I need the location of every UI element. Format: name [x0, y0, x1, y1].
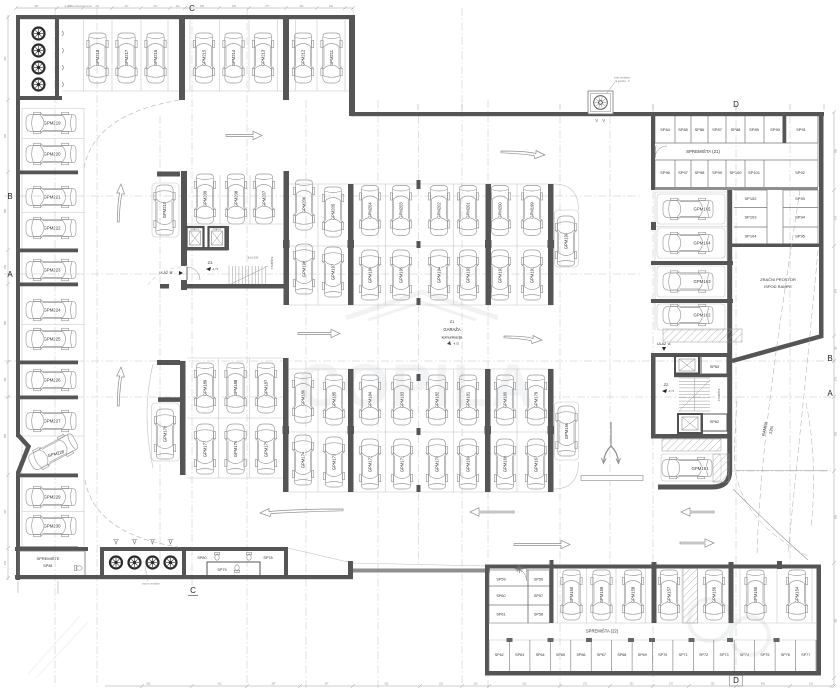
svg-text:GPM183: GPM183 [399, 391, 404, 408]
svg-text:SP71: SP71 [679, 653, 688, 657]
svg-text:GPM169: GPM169 [465, 455, 470, 472]
svg-text:B: B [7, 192, 12, 201]
svg-text:277: 277 [266, 5, 271, 8]
svg-text:GPM207: GPM207 [261, 190, 266, 207]
svg-text:GPM199: GPM199 [529, 202, 534, 219]
svg-text:217: 217 [125, 5, 130, 8]
svg-text:GPM214: GPM214 [231, 49, 236, 66]
svg-text:SP77: SP77 [801, 653, 810, 657]
svg-text:spojni ventilacijski kanal: spojni ventilacijski kanal [64, 4, 92, 8]
svg-text:SP95: SP95 [795, 234, 806, 239]
svg-text:GPM212: GPM212 [300, 49, 305, 66]
svg-text:GPM184: GPM184 [367, 391, 372, 408]
svg-text:SP75: SP75 [760, 653, 769, 657]
svg-text:352: 352 [711, 683, 716, 686]
svg-text:225: 225 [232, 5, 237, 8]
svg-text:SP93: SP93 [795, 196, 806, 201]
svg-text:112: 112 [176, 5, 180, 8]
svg-text:270: 270 [669, 683, 674, 686]
svg-text:GPM216: GPM216 [153, 49, 158, 66]
svg-text:SP70: SP70 [658, 653, 667, 657]
svg-text:GPM218: GPM218 [95, 49, 100, 66]
svg-text:262: 262 [4, 377, 7, 382]
svg-text:GPM180: GPM180 [502, 391, 507, 408]
svg-text:SP63: SP63 [515, 653, 524, 657]
svg-text:GPM224: GPM224 [44, 308, 62, 313]
svg-text:GPM189: GPM189 [202, 379, 207, 396]
svg-text:652: 652 [147, 683, 152, 686]
svg-text:D: D [733, 100, 739, 109]
svg-text:GPM158: GPM158 [630, 586, 635, 603]
svg-text:255: 255 [200, 5, 205, 8]
svg-text:zračni ventilator: zračni ventilator [142, 582, 160, 586]
svg-text:GPM197: GPM197 [330, 263, 335, 280]
svg-text:ISPOD RAMPE: ISPOD RAMPE [764, 284, 792, 289]
svg-text:A: A [7, 270, 13, 279]
svg-text:GPM177: GPM177 [202, 440, 207, 457]
svg-text:SP100: SP100 [729, 170, 742, 175]
svg-text:GPM167: GPM167 [533, 455, 538, 472]
svg-text:C: C [189, 4, 195, 13]
svg-text:862: 862 [835, 618, 838, 623]
svg-text:GPM191: GPM191 [529, 266, 534, 283]
svg-text:GPM159: GPM159 [599, 586, 604, 603]
svg-text:GPM201: GPM201 [465, 202, 470, 219]
svg-text:GPM194: GPM194 [436, 266, 441, 283]
svg-text:-4,51: -4,51 [453, 342, 460, 346]
svg-text:217: 217 [154, 5, 159, 8]
svg-text:SP78: SP78 [263, 556, 272, 560]
svg-text:GPM175: GPM175 [263, 440, 268, 457]
svg-text:585: 585 [4, 208, 7, 213]
svg-text:ULAZ ‘A’: ULAZ ‘A’ [657, 342, 671, 346]
svg-text:SP103: SP103 [744, 215, 757, 220]
svg-text:GPM205: GPM205 [330, 203, 335, 220]
svg-text:GPM229: GPM229 [44, 495, 62, 500]
svg-text:DIZALO 4: DIZALO 4 [191, 228, 199, 231]
svg-text:315: 315 [809, 683, 814, 686]
svg-text:SP92: SP92 [795, 170, 806, 175]
svg-text:217: 217 [96, 5, 101, 8]
svg-text:GPM174: GPM174 [300, 451, 305, 468]
svg-text:SP68: SP68 [617, 653, 626, 657]
svg-text:GPM166: GPM166 [564, 422, 569, 439]
svg-text:SP69: SP69 [638, 653, 647, 657]
svg-text:232: 232 [300, 5, 305, 8]
svg-text:322: 322 [630, 683, 635, 686]
svg-text:555: 555 [835, 431, 838, 436]
svg-text:GPM163: GPM163 [694, 279, 712, 284]
svg-text:-4,71: -4,71 [212, 267, 219, 271]
svg-text:GPM156: GPM156 [711, 586, 716, 603]
svg-text:SP81: SP81 [43, 563, 54, 568]
svg-text:GPM222: GPM222 [44, 226, 62, 231]
svg-text:Z2: Z2 [664, 382, 669, 387]
svg-text:SP64: SP64 [536, 653, 545, 657]
svg-text:GARAŽA: GARAŽA [443, 327, 460, 332]
svg-text:GPM176: GPM176 [233, 440, 238, 457]
svg-text:375: 375 [583, 683, 588, 686]
svg-text:zrak ventilator: zrak ventilator [614, 76, 630, 80]
svg-text:540: 540 [4, 133, 7, 138]
svg-text:GPM193: GPM193 [465, 266, 470, 283]
svg-text:SP56: SP56 [534, 578, 543, 582]
svg-text:SP67: SP67 [597, 653, 606, 657]
svg-text:D: D [733, 676, 739, 685]
svg-text:GPM182: GPM182 [434, 391, 439, 408]
svg-text:SP80: SP80 [197, 556, 206, 560]
svg-text:SP76: SP76 [781, 653, 790, 657]
svg-text:SP96: SP96 [660, 170, 671, 175]
svg-text:SPREMIŠTE: SPREMIŠTE [36, 556, 59, 561]
svg-text:GPM173: GPM173 [331, 453, 336, 470]
svg-text:GPM168: GPM168 [502, 455, 507, 472]
svg-text:Z3: Z3 [208, 260, 213, 265]
svg-text:GPM208: GPM208 [233, 190, 238, 207]
svg-text:GPM202: GPM202 [436, 202, 441, 219]
svg-text:SP72: SP72 [699, 653, 708, 657]
svg-text:307: 307 [35, 5, 40, 8]
svg-text:GPM200: GPM200 [497, 202, 502, 219]
svg-text:GPM154: GPM154 [794, 586, 799, 603]
svg-text:SP101: SP101 [748, 170, 761, 175]
svg-text:SP102: SP102 [744, 196, 757, 201]
svg-text:GPM225: GPM225 [44, 337, 62, 342]
svg-text:SP98: SP98 [695, 170, 706, 175]
svg-text:GPM165: GPM165 [694, 207, 712, 212]
svg-text:B: B [827, 354, 832, 363]
svg-text:komunikacija: komunikacija [442, 335, 463, 339]
svg-text:SPREMIŠTA (21): SPREMIŠTA (21) [686, 149, 720, 154]
svg-text:GPM209: GPM209 [202, 190, 207, 207]
svg-text:397: 397 [272, 683, 277, 686]
svg-text:SP104: SP104 [744, 234, 757, 239]
svg-text:GPM217: GPM217 [124, 49, 129, 66]
svg-text:GPM188: GPM188 [233, 379, 238, 396]
svg-text:SP60: SP60 [496, 594, 505, 598]
svg-text:SP73: SP73 [720, 653, 729, 657]
svg-text:585: 585 [835, 148, 838, 153]
svg-text:SP97: SP97 [678, 170, 689, 175]
svg-text:585: 585 [4, 320, 7, 325]
svg-text:8x16,9/30: 8x16,9/30 [248, 257, 259, 260]
svg-text:SP84: SP84 [660, 127, 671, 132]
svg-text:SP58: SP58 [534, 613, 543, 617]
svg-text:SP65: SP65 [556, 653, 565, 657]
svg-text:SP89: SP89 [749, 127, 760, 132]
svg-text:SP87: SP87 [712, 127, 723, 132]
svg-text:GPM219: GPM219 [44, 121, 62, 126]
svg-text:SPREMIŠTA (22): SPREMIŠTA (22) [586, 629, 619, 634]
svg-text:255: 255 [4, 264, 7, 269]
svg-text:547: 547 [4, 509, 7, 514]
svg-text:405: 405 [761, 683, 766, 686]
svg-text:za garažu - 5: za garažu - 5 [614, 79, 630, 83]
svg-text:GPM157: GPM157 [666, 586, 671, 603]
svg-text:GPM220: GPM220 [44, 152, 62, 157]
svg-text:GPM227: GPM227 [44, 419, 62, 424]
svg-text:SP66: SP66 [576, 653, 585, 657]
svg-text:270: 270 [835, 376, 838, 381]
svg-text:GPM185: GPM185 [331, 391, 336, 408]
svg-text:GPM172: GPM172 [367, 455, 372, 472]
svg-text:GPM195: GPM195 [398, 266, 403, 283]
svg-text:532: 532 [523, 683, 528, 686]
svg-text:SP74: SP74 [740, 653, 749, 657]
svg-text:SP82: SP82 [710, 420, 719, 424]
svg-text:GPM187: GPM187 [263, 379, 268, 396]
svg-text:DIZALO 3: DIZALO 3 [213, 228, 221, 231]
svg-text:C: C [190, 586, 196, 595]
svg-text:GPM226: GPM226 [44, 378, 62, 383]
svg-text:GPM213: GPM213 [260, 49, 265, 66]
svg-text:SP99: SP99 [712, 170, 723, 175]
svg-text:SP57: SP57 [534, 594, 543, 598]
svg-text:GPM211: GPM211 [329, 49, 334, 66]
svg-text:SP83: SP83 [710, 365, 719, 369]
svg-text:SP61: SP61 [496, 613, 505, 617]
svg-text:SP88: SP88 [731, 127, 742, 132]
svg-text:202: 202 [474, 683, 479, 686]
svg-text:GPM210: GPM210 [162, 201, 167, 218]
svg-text:-4,71: -4,71 [668, 389, 675, 393]
svg-text:GPM223: GPM223 [44, 268, 62, 273]
svg-text:690: 690 [835, 514, 838, 519]
svg-text:315: 315 [439, 683, 444, 686]
svg-text:SP90: SP90 [770, 127, 781, 132]
svg-text:210: 210 [329, 5, 334, 8]
svg-text:SP79: SP79 [217, 568, 226, 572]
svg-text:A: A [827, 389, 833, 398]
svg-text:622: 622 [4, 56, 7, 61]
svg-text:GPM190: GPM190 [563, 232, 568, 249]
svg-text:GPM198: GPM198 [301, 260, 306, 277]
svg-text:GPM178: GPM178 [162, 425, 167, 442]
svg-text:SP91: SP91 [796, 127, 807, 132]
svg-text:397: 397 [325, 683, 330, 686]
svg-text:GPM179: GPM179 [533, 391, 538, 408]
svg-text:GPM155: GPM155 [753, 586, 758, 603]
svg-text:SP62: SP62 [495, 653, 504, 657]
svg-text:GPM160: GPM160 [569, 586, 574, 603]
svg-text:585: 585 [4, 433, 7, 438]
svg-text:GPM161: GPM161 [692, 466, 710, 471]
svg-text:412: 412 [218, 683, 223, 686]
svg-text:SP94: SP94 [795, 215, 806, 220]
svg-text:GPM196: GPM196 [367, 266, 372, 283]
svg-text:GPM203: GPM203 [398, 202, 403, 219]
svg-text:GPM230: GPM230 [44, 524, 62, 529]
svg-text:225: 225 [4, 560, 7, 565]
svg-text:GPM164: GPM164 [694, 241, 712, 246]
svg-text:GPM162: GPM162 [694, 313, 712, 318]
svg-text:ZRAČNI PROSTOR: ZRAČNI PROSTOR [760, 277, 796, 282]
svg-text:420: 420 [835, 215, 838, 220]
svg-text:Z1: Z1 [450, 319, 455, 324]
svg-text:GPM206: GPM206 [301, 196, 306, 213]
svg-text:GPM181: GPM181 [465, 391, 470, 408]
svg-text:GPM171: GPM171 [399, 455, 404, 472]
svg-text:675: 675 [835, 288, 838, 293]
svg-text:GPM170: GPM170 [434, 455, 439, 472]
svg-text:GPM221: GPM221 [44, 195, 62, 200]
svg-text:GPM204: GPM204 [367, 202, 372, 219]
svg-text:SP85: SP85 [678, 127, 689, 132]
svg-text:187: 187 [835, 346, 838, 351]
svg-text:GPM192: GPM192 [497, 266, 502, 283]
svg-text:SP86: SP86 [695, 127, 706, 132]
svg-text:SP59: SP59 [496, 578, 505, 582]
svg-text:502: 502 [385, 683, 390, 686]
svg-text:GPM186: GPM186 [300, 389, 305, 406]
svg-text:GPM215: GPM215 [201, 49, 206, 66]
